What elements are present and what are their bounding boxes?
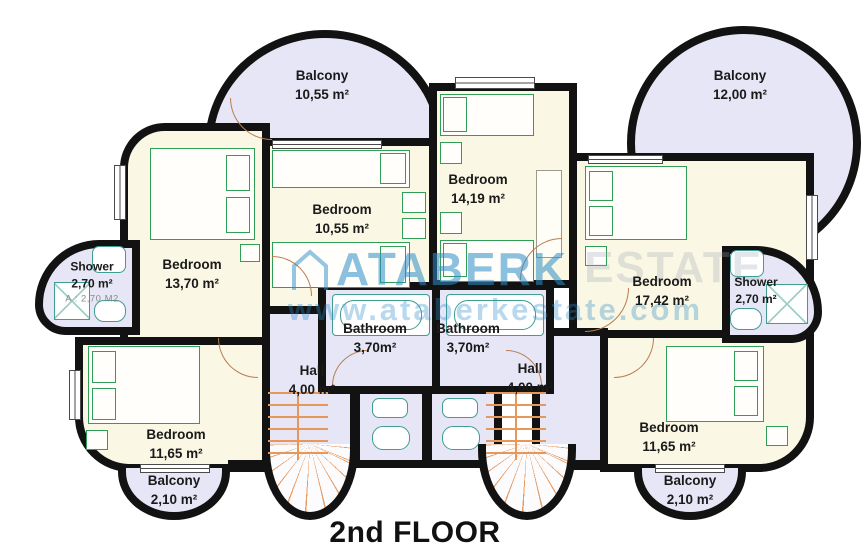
nightstand bbox=[402, 218, 426, 239]
balcony-door bbox=[272, 140, 382, 149]
pillow bbox=[589, 206, 613, 236]
label-hall-right: Hall4,00 m² bbox=[507, 360, 554, 398]
pillow bbox=[226, 197, 250, 233]
pillow bbox=[380, 153, 406, 184]
label-hall-left: Hall4,00 m² bbox=[289, 362, 336, 400]
label-bathroom-left: Bathroom3,70m² bbox=[343, 320, 407, 358]
pillow bbox=[92, 388, 116, 420]
pillow bbox=[443, 243, 467, 277]
nightstand bbox=[766, 426, 788, 446]
label-balcony-bottom-left: Balcony2,10 m² bbox=[148, 472, 201, 510]
sink bbox=[372, 398, 408, 418]
pillow bbox=[734, 386, 758, 416]
floor-plan: ATABERK ESTATE www.ataberkestate.com Bal… bbox=[0, 0, 864, 555]
toilet bbox=[442, 426, 480, 450]
window bbox=[455, 77, 535, 89]
label-shower-right: Shower2,70 m² bbox=[734, 274, 777, 308]
staircase-right bbox=[486, 392, 546, 460]
nightstand bbox=[440, 142, 462, 164]
label-balcony-bottom-right: Balcony2,10 m² bbox=[664, 472, 717, 510]
pillow bbox=[734, 351, 758, 381]
page-title: 2nd FLOOR bbox=[329, 516, 500, 550]
staircase-left bbox=[268, 392, 328, 460]
balcony-door bbox=[588, 155, 663, 164]
label-shower-left: Shower2,70 m² A : 2,70 M2 bbox=[65, 259, 119, 306]
label-bedroom-lower-left: Bedroom11,65 m² bbox=[146, 426, 205, 464]
nightstand bbox=[402, 192, 426, 213]
toilet bbox=[730, 308, 762, 330]
label-bathroom-right: Bathroom3,70m² bbox=[436, 320, 500, 358]
toilet bbox=[372, 426, 410, 450]
pillow bbox=[443, 97, 467, 132]
nightstand bbox=[86, 430, 108, 450]
label-balcony-top-right: Balcony12,00 m² bbox=[713, 67, 767, 105]
nightstand bbox=[585, 246, 607, 266]
label-bedroom-upper-right: Bedroom17,42 m² bbox=[632, 273, 691, 311]
pillow bbox=[589, 171, 613, 201]
label-bedroom-upper-left: Bedroom13,70 m² bbox=[162, 256, 221, 294]
sink bbox=[442, 398, 478, 418]
label-bedroom-mid-right: Bedroom14,19 m² bbox=[448, 171, 507, 209]
pillow bbox=[92, 351, 116, 383]
window bbox=[114, 165, 126, 220]
label-bedroom-mid-left: Bedroom10,55 m² bbox=[312, 201, 371, 239]
sink bbox=[730, 250, 764, 277]
window bbox=[69, 370, 81, 420]
pillow bbox=[380, 246, 406, 283]
pillow bbox=[226, 155, 250, 191]
label-balcony-top-left: Balcony10,55 m² bbox=[295, 67, 349, 105]
window bbox=[806, 195, 818, 260]
nightstand bbox=[440, 212, 462, 234]
wall-segment bbox=[572, 460, 608, 470]
nightstand bbox=[240, 244, 260, 262]
label-bedroom-lower-right: Bedroom11,65 m² bbox=[639, 419, 698, 457]
